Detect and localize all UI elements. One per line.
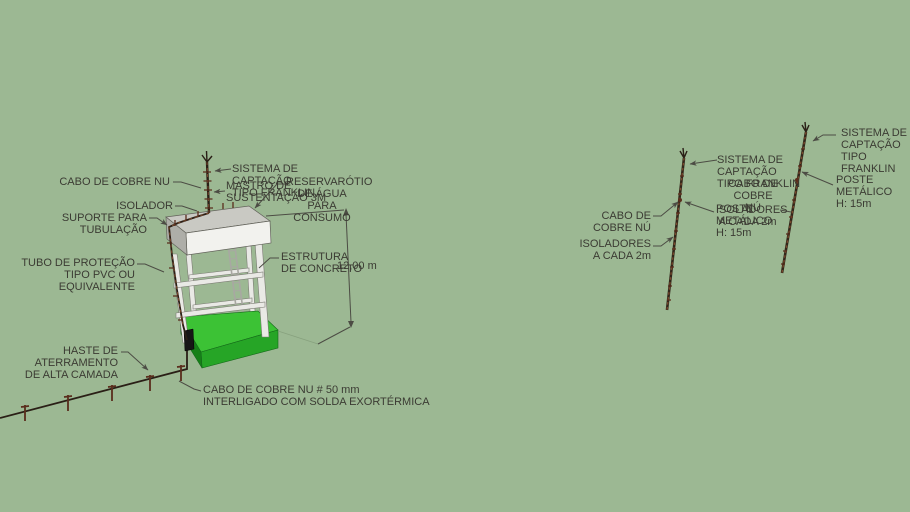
metal-pole-2 (781, 122, 809, 273)
ground-rod (21, 365, 185, 421)
lightning-rod-tip (802, 122, 809, 132)
lightning-rod-tip (680, 148, 687, 158)
model-viewport[interactable]: CABO DE COBRE NU ISOLADOR SUPORTE PARA T… (0, 0, 910, 512)
lightning-rod-tip (202, 151, 212, 162)
water-tower (166, 151, 278, 368)
scene-graphics (0, 0, 910, 512)
metal-pole-1 (667, 148, 687, 310)
dimension-line (266, 208, 354, 344)
grounding-cable (0, 347, 187, 421)
franklin-mast (202, 151, 213, 213)
